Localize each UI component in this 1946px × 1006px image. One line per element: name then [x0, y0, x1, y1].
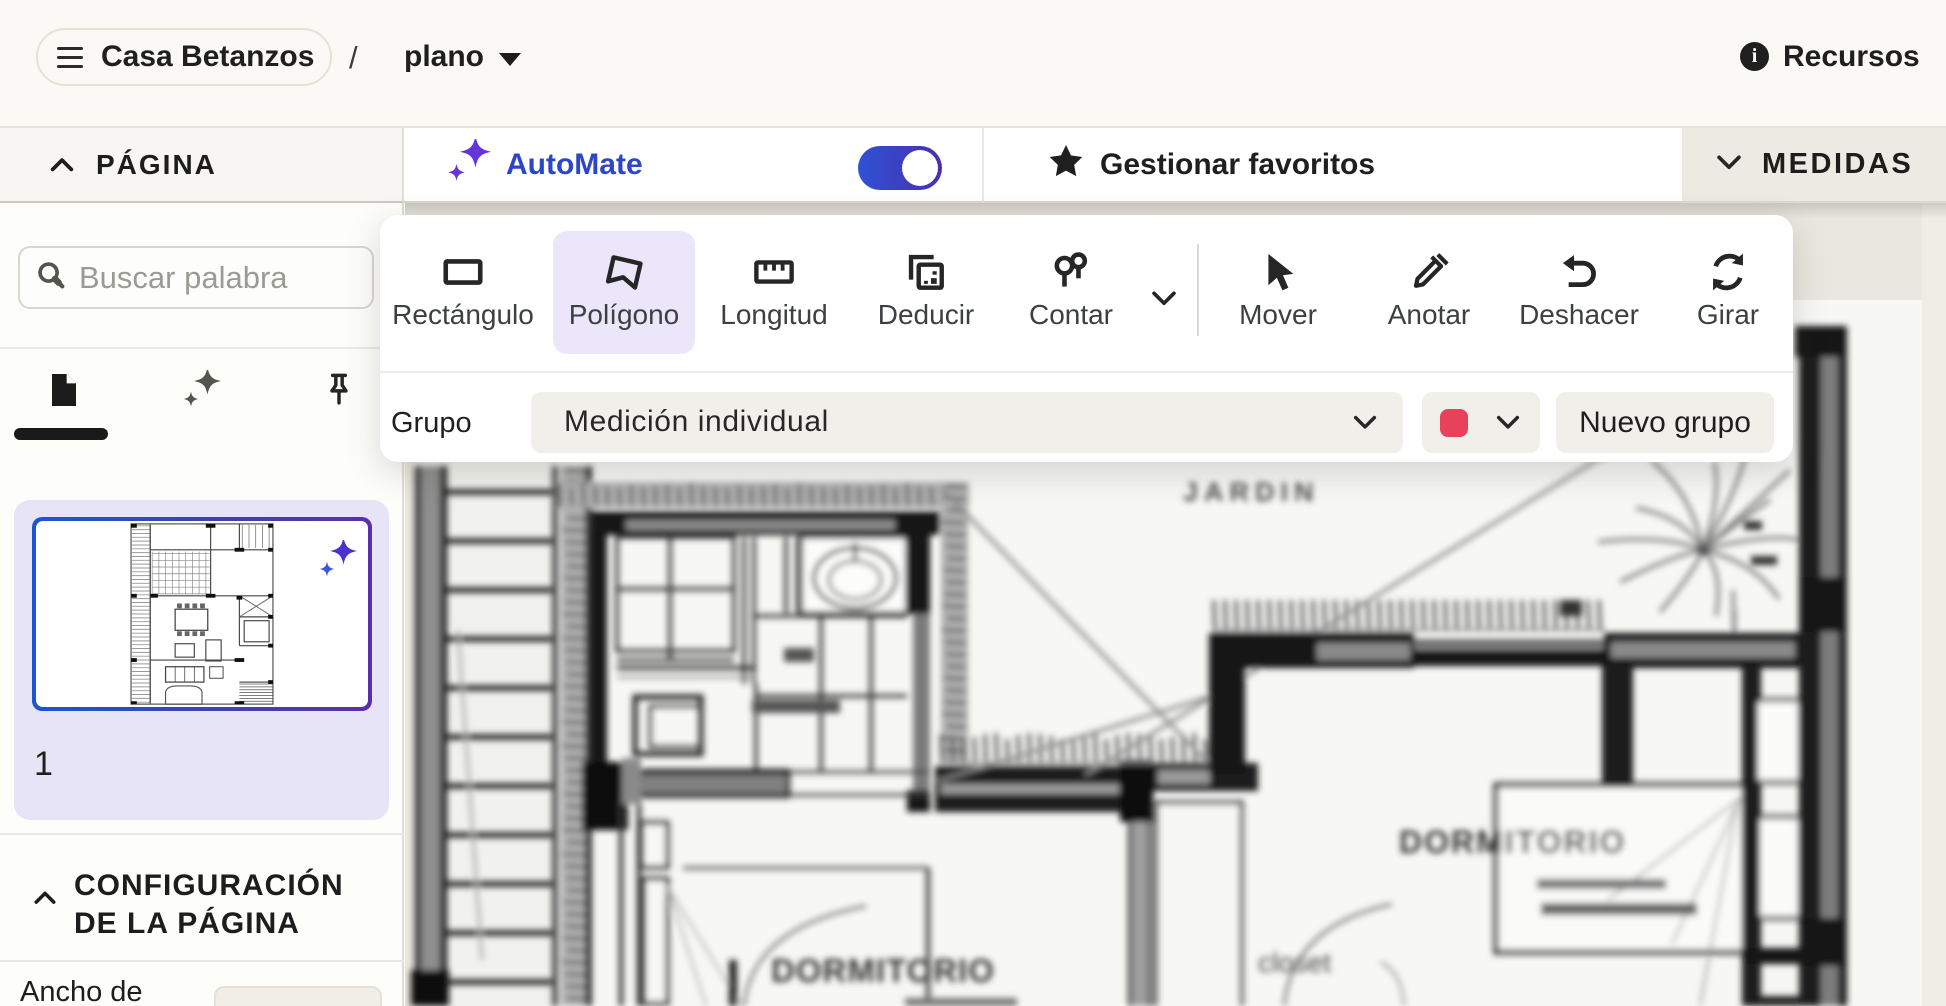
- svg-text:DORMITORIO: DORMITORIO: [1399, 824, 1626, 860]
- svg-text:closet: closet: [1258, 947, 1331, 978]
- svg-text:DORMITORIO: DORMITORIO: [771, 952, 995, 989]
- svg-text:JARDIN: JARDIN: [1183, 477, 1320, 507]
